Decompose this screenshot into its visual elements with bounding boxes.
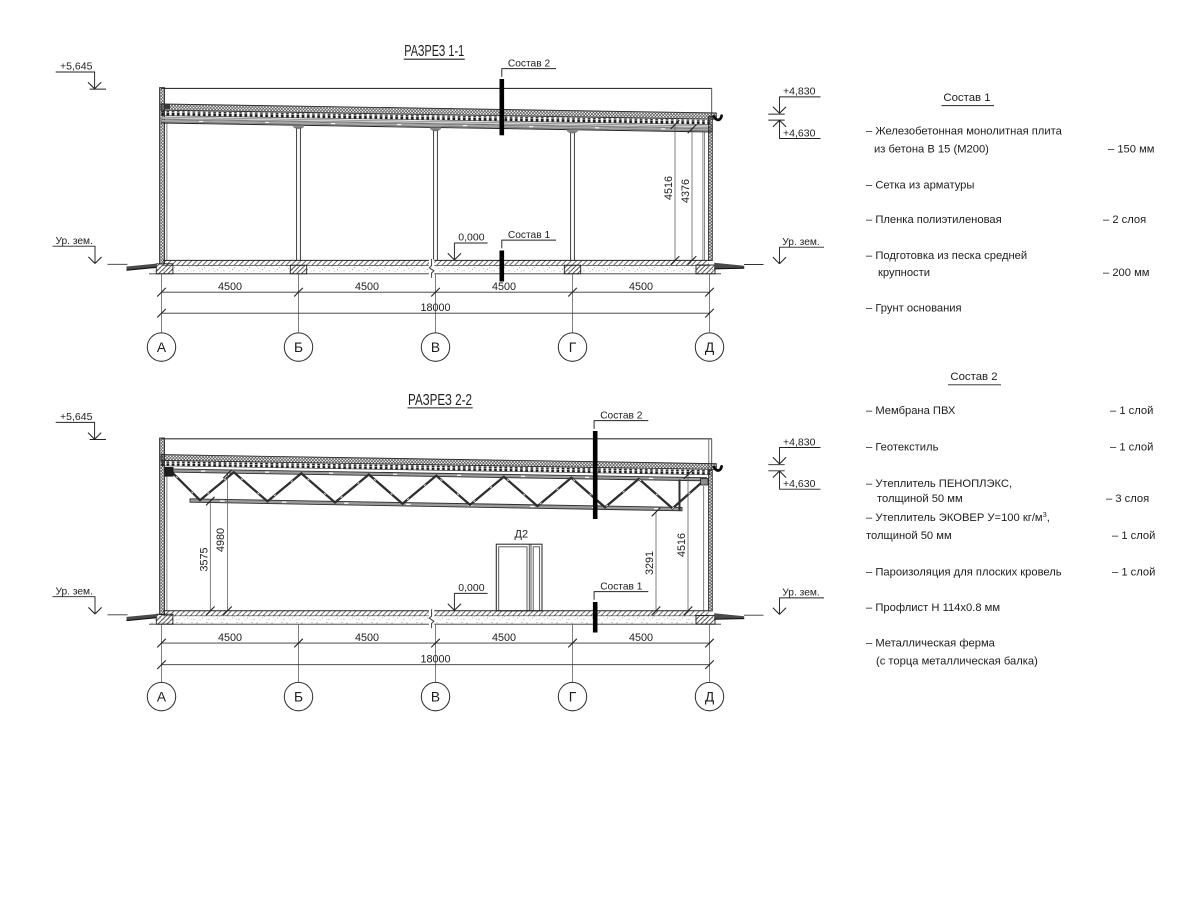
svg-text:– Мембрана ПВХ: – Мембрана ПВХ [866, 405, 956, 417]
svg-text:Б: Б [294, 690, 303, 705]
svg-text:Г: Г [569, 690, 577, 705]
svg-text:4500: 4500 [629, 632, 653, 644]
svg-text:– 3 слоя: – 3 слоя [1106, 493, 1149, 505]
svg-text:Состав 1: Состав 1 [943, 92, 990, 104]
svg-text:– Подготовка из песка средней: – Подготовка из песка средней [866, 250, 1027, 262]
svg-text:0,000: 0,000 [458, 232, 484, 244]
svg-text:– Пароизоляция для плоских кро: – Пароизоляция для плоских кровель [866, 567, 1062, 579]
svg-text:– 1 слой: – 1 слой [1112, 530, 1155, 542]
svg-text:– 1 слой: – 1 слой [1110, 442, 1153, 454]
svg-text:4500: 4500 [492, 281, 516, 293]
svg-text:+4,630: +4,630 [783, 478, 816, 490]
svg-text:– Металлическая ферма: – Металлическая ферма [866, 638, 996, 650]
svg-text:(с торца металлическая балка): (с торца металлическая балка) [876, 656, 1038, 668]
svg-text:Состав 1: Состав 1 [508, 230, 551, 241]
svg-text:– Профлист Н 114х0.8 мм: – Профлист Н 114х0.8 мм [866, 602, 1000, 614]
svg-text:– Грунт основания: – Грунт основания [866, 303, 962, 315]
svg-text:+4,830: +4,830 [783, 86, 816, 98]
svg-text:+4,630: +4,630 [783, 128, 816, 140]
svg-text:толщиной 50 мм: толщиной 50 мм [877, 493, 963, 505]
svg-text:18000: 18000 [420, 653, 450, 665]
svg-text:4516: 4516 [676, 533, 688, 557]
svg-text:толщиной 50 мм: толщиной 50 мм [866, 530, 952, 542]
svg-text:– 200 мм: – 200 мм [1103, 267, 1150, 279]
svg-text:4500: 4500 [629, 281, 653, 293]
svg-text:4516: 4516 [663, 176, 675, 200]
svg-text:Состав 1: Состав 1 [600, 581, 643, 592]
svg-text:– 1 слой: – 1 слой [1112, 567, 1155, 579]
svg-text:+5,645: +5,645 [60, 411, 93, 423]
svg-text:А: А [157, 340, 167, 355]
svg-text:– Геотекстиль: – Геотекстиль [866, 442, 939, 454]
svg-text:– 150 мм: – 150 мм [1108, 144, 1155, 156]
svg-text:18000: 18000 [420, 302, 450, 314]
svg-text:РАЗРЕЗ 1-1: РАЗРЕЗ 1-1 [404, 43, 464, 60]
svg-text:Д2: Д2 [515, 529, 529, 541]
svg-text:3291: 3291 [644, 551, 656, 575]
svg-text:+5,645: +5,645 [60, 61, 93, 73]
svg-text:Г: Г [569, 340, 577, 355]
svg-text:– Утеплитель ПЕНОПЛЭКС,: – Утеплитель ПЕНОПЛЭКС, [866, 478, 1012, 490]
svg-text:из бетона В 15 (М200): из бетона В 15 (М200) [874, 144, 989, 156]
svg-text:В: В [431, 690, 440, 705]
svg-text:– 1 слой: – 1 слой [1110, 405, 1153, 417]
svg-text:– Пленка полиэтиленовая: – Пленка полиэтиленовая [866, 214, 1002, 226]
svg-text:А: А [157, 690, 167, 705]
svg-text:РАЗРЕЗ 2-2: РАЗРЕЗ 2-2 [408, 392, 472, 409]
svg-text:– Железобетонная монолитная п: – Железобетонная монолитная плита [866, 126, 1063, 138]
svg-text:Д: Д [705, 690, 715, 705]
svg-text:крупности: крупности [878, 267, 930, 279]
svg-text:Ур. зем.: Ур. зем. [56, 236, 93, 247]
svg-text:Д: Д [705, 340, 715, 355]
svg-text:В: В [431, 340, 440, 355]
svg-text:4500: 4500 [355, 281, 379, 293]
svg-text:4500: 4500 [492, 632, 516, 644]
svg-text:Ур. зем.: Ур. зем. [782, 588, 819, 599]
svg-text:4500: 4500 [218, 281, 242, 293]
svg-text:– Сетка из арматуры: – Сетка из арматуры [866, 180, 974, 192]
svg-text:Состав 2: Состав 2 [508, 58, 551, 69]
svg-text:0,000: 0,000 [458, 582, 484, 594]
svg-text:Ур. зем.: Ур. зем. [56, 587, 93, 598]
svg-text:4500: 4500 [218, 632, 242, 644]
svg-text:Ур. зем.: Ур. зем. [782, 237, 819, 248]
svg-text:4376: 4376 [680, 179, 692, 203]
svg-text:3575: 3575 [198, 547, 210, 571]
svg-text:4980: 4980 [215, 528, 227, 552]
svg-text:Б: Б [294, 340, 303, 355]
svg-text:Состав 2: Состав 2 [950, 371, 997, 383]
svg-text:+4,830: +4,830 [783, 436, 816, 448]
svg-text:Состав 2: Состав 2 [600, 410, 643, 421]
svg-text:– Утеплитель ЭКОВЕР У=100 кг/м: – Утеплитель ЭКОВЕР У=100 кг/м3, [866, 510, 1050, 524]
svg-text:– 2 слоя: – 2 слоя [1103, 214, 1146, 226]
svg-text:4500: 4500 [355, 632, 379, 644]
